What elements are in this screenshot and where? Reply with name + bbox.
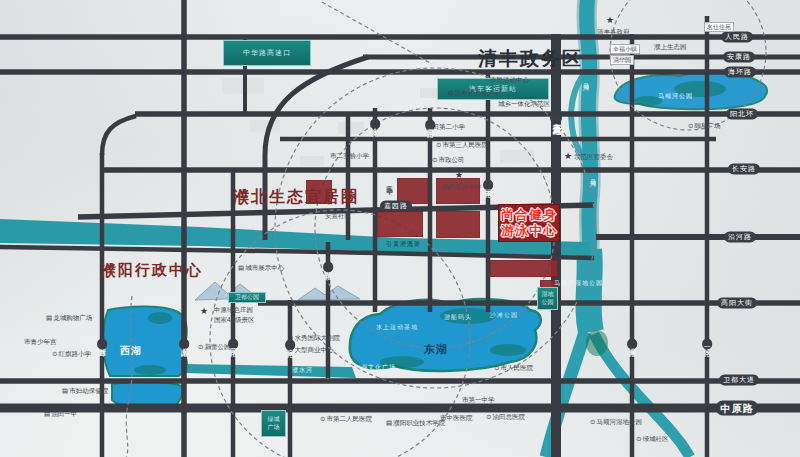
star-icon: ★ (606, 15, 614, 25)
water-label: 东湖 (424, 342, 448, 357)
poi-label: ⊙马颊河湿地公园 (590, 419, 642, 426)
road-label-vertical: 恒丰路 (483, 180, 493, 191)
road-label: 高阳大街 (717, 297, 757, 308)
community-chip: 清华园 (610, 55, 634, 65)
poi-text: 油田一中 (51, 410, 77, 417)
info-box-text: 湿地 (542, 291, 554, 298)
building-icon: ▤ (46, 314, 52, 321)
star-icon: ★ (200, 306, 208, 316)
building-icon: ▤ (62, 387, 68, 394)
road-label-vertical: 濮上路 (179, 339, 189, 350)
poi-dot-icon: ⊙ (688, 122, 693, 129)
poi-label: ⊙市政公司 (432, 157, 464, 164)
poi-text: 清丰县政府 (597, 28, 630, 35)
poi-label: 油田第二小学 (426, 124, 465, 131)
district-label-qingfeng: 清丰政务区 (478, 46, 583, 72)
poi-text: 油田艺术中学 (442, 183, 481, 190)
water-label: 沙滩公园 (490, 311, 518, 320)
water-label: 引黄灌溉渠 (386, 240, 421, 249)
poi-label: 市中医医院 (440, 415, 473, 422)
poi-text: 市第一中学 (462, 396, 495, 403)
road-label-vertical: 金堤路 (370, 119, 380, 130)
building-icon: ▤ (238, 264, 244, 271)
poi-label: 市民活动中心 (490, 77, 529, 84)
road-label-vertical: 经一路 (702, 339, 712, 350)
poi-dot-icon: ⊙ (486, 413, 491, 420)
poi-dot-icon: ⊙ (436, 141, 441, 148)
poi-text: 实验小学 (387, 180, 394, 184)
info-box-text: 中华路高速口 (243, 49, 291, 57)
poi-text: 红旗路小学 (58, 350, 91, 357)
poi-text: 国家4A级景区 (214, 316, 254, 323)
road-label-vertical: 新西环 (97, 339, 107, 350)
info-box: 中华路高速口 (223, 40, 311, 66)
development-block (436, 178, 480, 204)
poi-text: 市妇幼保健院 (69, 387, 108, 394)
poi-label: 市二实验小学 (330, 153, 369, 160)
poi-text: 颐和广场 (694, 122, 720, 129)
poi-text: 油田第二小学 (426, 123, 465, 130)
location-map: 清丰政务区 濮北生态宜居圈 濮阳行政中心 尚合健身 游泳中心 中华路高速口汽车客… (0, 0, 800, 457)
poi-label: ⊙市第三人民医院 (436, 142, 488, 149)
poi-dot-icon: ⊙ (448, 89, 453, 96)
poi-dot-icon: ⊙ (288, 334, 293, 341)
road-label: 中原路 (717, 401, 758, 416)
poi-label: 市青少年宫 (24, 339, 57, 346)
road-label: 阳北环 (726, 108, 758, 119)
poi-label: ⊙红旗路小学 (52, 351, 91, 358)
poi-dot-icon: ⊙ (590, 418, 595, 425)
poi-dot-icon: ⊙ (320, 415, 325, 422)
poi-label: 示范区管委会 (574, 154, 613, 161)
info-box: 湿地公园 (537, 287, 558, 310)
road-label: 沿河路 (724, 231, 756, 242)
poi-label: ⊙新蕾公园 (198, 344, 230, 351)
poi-dot-icon: ⊙ (52, 350, 57, 357)
road-label: 安康路 (723, 51, 755, 62)
water-label: 马颊河 (581, 78, 590, 81)
poi-label: 中原绿色庄园 (214, 307, 253, 314)
development-block (490, 260, 558, 277)
poi-label: 实验小学 (386, 180, 393, 184)
info-box: 绿城广场 (261, 410, 286, 437)
info-box-text: 卫都公园 (235, 294, 259, 301)
water-label: 水上运动基地 (376, 323, 418, 332)
district-label-admin: 濮阳行政中心 (101, 261, 203, 280)
poi-text: 水秀国际大剧院 (294, 334, 340, 341)
star-marker: ★ (200, 307, 209, 316)
poi-text: 濮上生态园 (654, 43, 687, 50)
poi-text: 濮阳职业技术学院 (393, 419, 445, 426)
development-block (436, 211, 480, 238)
poi-label: 安置社区 (325, 213, 351, 220)
info-box-text: 公园 (542, 299, 554, 306)
district-label-pubei: 濮北生态宜居圈 (233, 187, 359, 208)
poi-text: 龙城购物广场 (53, 314, 92, 321)
poi-label: ⊙大型商业中心 (288, 347, 333, 354)
poi-label: ⊙油田总医院 (486, 414, 525, 421)
poi-label: ▤濮阳职业技术学院 (386, 420, 445, 427)
poi-text: 市人民医院 (500, 364, 533, 371)
road-label: 卫都大道 (719, 374, 759, 385)
water-label: 游船码头 (444, 313, 472, 322)
road-label: 人民路 (721, 31, 753, 42)
water-label: 东湖文化广场 (354, 363, 396, 372)
road-label-vertical: 京开大道 (550, 112, 562, 124)
poi-text: 市第二人民医院 (326, 415, 372, 422)
project-name-line2: 游泳中心 (501, 223, 557, 239)
poi-label: ⊙绿城社区 (636, 436, 668, 443)
poi-label: 油田艺术中学 (442, 184, 481, 191)
building-icon: ▤ (44, 410, 50, 417)
info-box-text: 广场 (268, 424, 280, 431)
star-marker: ★ (455, 171, 464, 180)
community-chip: 名仕佳苑 (704, 22, 734, 32)
poi-text: 安置社区 (325, 212, 351, 219)
poi-text: 中原绿色庄园 (214, 306, 253, 313)
project-marker: 尚合健身 游泳中心 (498, 204, 560, 242)
star-marker: ★ (564, 152, 573, 161)
poi-text: 示范区管委会 (574, 153, 613, 160)
poi-label: 濮上生态园 (654, 44, 687, 51)
star-icon: ★ (455, 170, 463, 180)
star-marker: ★ (606, 16, 615, 25)
poi-label: ▤油田一中 (44, 411, 77, 418)
development-block (377, 211, 423, 237)
poi-text: 清丰县实验小学 (454, 89, 500, 96)
water-label: 马颊河公园 (658, 92, 693, 101)
building-icon: ▤ (386, 419, 392, 426)
poi-label: 清丰县政府 (597, 29, 630, 36)
poi-label: ⊙清丰县实验小学 (448, 90, 500, 97)
poi-text: 马颊河湿地公园 (596, 418, 642, 425)
poi-text: 新蕾公园 (204, 343, 230, 350)
poi-text: 油田总医院 (492, 413, 525, 420)
poi-label: 国家4A级景区 (214, 317, 254, 324)
star-icon: ★ (564, 151, 572, 161)
poi-dot-icon: ⊙ (198, 343, 203, 350)
poi-dot-icon: ⊙ (432, 156, 437, 163)
poi-label: ⊙市第二人民医院 (320, 416, 372, 423)
poi-text: 市中医医院 (440, 414, 473, 421)
poi-text: 市二实验小学 (330, 152, 369, 159)
poi-text: 市民活动中心 (490, 76, 529, 83)
road-label-vertical: 濮河路 (627, 339, 637, 350)
community-chip: 幸福小镇 (610, 44, 640, 54)
road-label-vertical: 智慧路 (323, 262, 333, 273)
poi-text: 市第三人民医院 (442, 141, 488, 148)
info-box-text: 绿城 (268, 416, 280, 423)
poi-label: ⊙市人民医院 (494, 365, 533, 372)
poi-label: 市第一中学 (462, 397, 495, 404)
poi-dot-icon: ⊙ (494, 364, 499, 371)
poi-dot-icon: ⊙ (636, 435, 641, 442)
road-label: 长安路 (728, 163, 760, 174)
poi-label: ▤城市展示中心 (238, 265, 284, 272)
poi-text: 城乡一体化示范区 (498, 100, 550, 107)
poi-text: 大型商业中心 (294, 346, 333, 353)
poi-label: ▤市妇幼保健院 (62, 388, 108, 395)
poi-label: ▤龙城购物广场 (46, 315, 92, 322)
poi-text: 市政公司 (438, 156, 464, 163)
poi-text: 市青少年宫 (24, 338, 57, 345)
road-label: 嘉园路 (380, 200, 412, 211)
water-label: 马颊河湿地公园 (554, 279, 603, 288)
poi-dot-icon: ⊙ (288, 346, 293, 353)
poi-text: 城市展示中心 (245, 264, 284, 271)
poi-label: ⊙颐和广场 (688, 123, 720, 130)
road-label: 海环路 (724, 66, 756, 77)
poi-label: ⊙水秀国际大剧院 (288, 335, 340, 342)
poi-label: 城乡一体化示范区 (498, 101, 550, 108)
info-box: 卫都公园 (228, 292, 266, 303)
water-label: 西湖 (120, 344, 142, 358)
water-label: 濮水河 (292, 366, 313, 375)
poi-text: 绿城社区 (642, 435, 668, 442)
project-name-line1: 尚合健身 (501, 207, 557, 223)
water-label: 马颊河 (588, 174, 597, 177)
